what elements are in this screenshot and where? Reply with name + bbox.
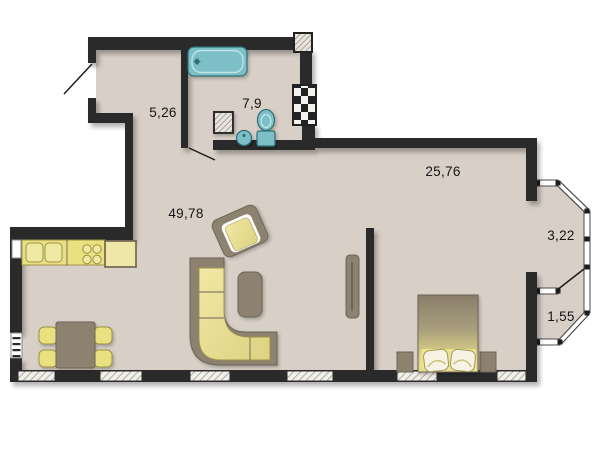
ottoman <box>238 272 262 317</box>
chair <box>39 350 57 367</box>
pillow <box>450 349 476 372</box>
area-label-balcony-bottom: 1,55 <box>547 309 574 324</box>
wall-segment <box>10 227 133 240</box>
bay-wall-bottom <box>537 339 560 345</box>
dining-table <box>56 322 95 368</box>
nightstand <box>480 352 496 372</box>
bathtub <box>188 47 247 76</box>
kitchen-sink-bowl <box>26 243 43 262</box>
wall-segment-bath-divider <box>181 50 188 148</box>
window-segment <box>100 371 142 381</box>
wall-segment <box>88 37 96 63</box>
wall-segment <box>300 49 312 87</box>
bay-wall-top <box>537 180 558 186</box>
wall-segment <box>526 138 537 201</box>
radiator <box>12 240 21 258</box>
wall-segment <box>526 272 537 382</box>
wall-segment <box>315 138 526 148</box>
floor-balcony-opening <box>526 201 537 272</box>
tv-stand <box>346 255 359 318</box>
window-segment <box>190 371 230 381</box>
area-label-hallway: 5,26 <box>149 105 176 120</box>
area-label-bedroom: 25,76 <box>425 164 460 179</box>
wall-segment-partition <box>366 228 374 372</box>
nightstand <box>397 352 413 372</box>
bay-wall-mid <box>537 288 558 294</box>
ventilation-shaft <box>293 85 316 125</box>
kitchen <box>12 240 136 267</box>
floor-plan: 5,26 7,9 25,76 49,78 3,22 1,55 <box>0 0 600 450</box>
left-wall-window <box>11 333 22 358</box>
area-label-balcony-top: 3,22 <box>547 228 574 243</box>
window-segment <box>287 371 333 381</box>
fridge <box>105 241 136 267</box>
chair <box>94 350 112 367</box>
wall-segment <box>125 113 133 240</box>
window-segment <box>497 371 526 381</box>
area-label-bathroom: 7,9 <box>242 96 262 111</box>
pillow <box>423 349 449 373</box>
structural-column <box>294 33 312 52</box>
floor-plan-canvas: 5,26 7,9 25,76 49,78 3,22 1,55 <box>0 0 600 450</box>
window-segment <box>18 371 55 381</box>
sink-unit <box>214 112 233 133</box>
chair <box>94 327 112 344</box>
kitchen-sink-bowl <box>45 243 62 262</box>
entry-door-swing <box>64 64 92 94</box>
chair <box>39 327 57 344</box>
washbasin <box>237 131 252 146</box>
double-bed <box>418 295 478 372</box>
toilet <box>257 110 275 147</box>
bay-wall-right <box>584 211 590 313</box>
area-label-living-kitchen: 49,78 <box>168 206 203 221</box>
